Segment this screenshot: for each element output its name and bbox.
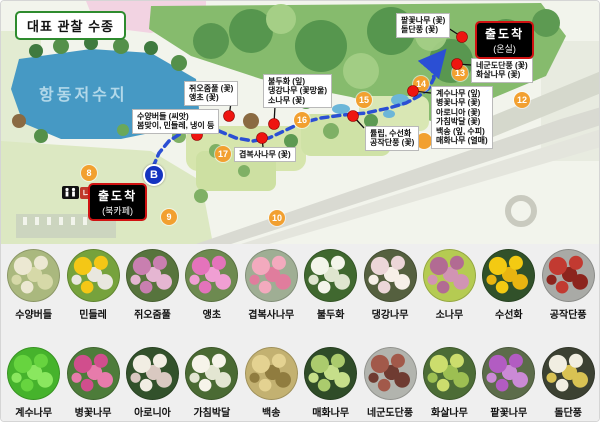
annotation-line: 화살나무 (꽃): [476, 70, 528, 79]
plant-item: 수양버들: [5, 249, 63, 321]
plant-name: 매화나무: [312, 404, 349, 419]
map-annotation-6: 네군도단풍 (꽃)화살나무 (꽃): [471, 58, 533, 83]
plant-item: 소나무: [420, 249, 478, 321]
plant-name: 앵초: [203, 306, 221, 321]
map-annotation-7: 팥꽃나무 (꽃)돌단풍 (꽃): [396, 13, 450, 38]
terminus-bookcafe-sub: (북카페): [98, 204, 137, 217]
plant-photo: [304, 347, 357, 400]
annotation-line: 앵초 (꽃): [189, 93, 233, 102]
plant-photo: [67, 249, 120, 302]
plant-item: 병꽃나무: [64, 347, 122, 419]
plant-name: 쥐오줌풀: [134, 306, 171, 321]
plant-photo: [126, 249, 179, 302]
annotation-line: 겹복사나무 (꽃): [239, 150, 291, 159]
plant-item: 네군도단풍: [361, 347, 419, 419]
terminus-greenhouse-title: 출도착: [485, 25, 524, 42]
plant-item: 앵초: [183, 249, 241, 321]
park-map: 대표 관찰 수종 항동저수지 출도착 (온실) 출도착 (북카페) B 나 89…: [1, 1, 600, 244]
plant-photo: [126, 347, 179, 400]
poi-dot: [257, 133, 268, 144]
infographic: 대표 관찰 수종 항동저수지 출도착 (온실) 출도착 (북카페) B 나 89…: [0, 0, 600, 422]
plant-item: 매화나무: [302, 347, 360, 419]
plant-name: 돌단풍: [554, 404, 582, 419]
plant-name: 아로니아: [134, 404, 171, 419]
plant-item: 돌단풍: [539, 347, 597, 419]
plant-name: 공작단풍: [550, 306, 587, 321]
annotation-line: 병꽃나무 (꽃): [436, 98, 488, 107]
annotation-line: 돌단풍 (꽃): [401, 25, 445, 34]
annotation-line: 공작단풍 (꽃): [370, 138, 414, 147]
plant-name: 가침박달: [193, 404, 230, 419]
annotation-line: 소나무 (꽃): [268, 96, 327, 105]
plant-item: 쥐오줌풀: [123, 249, 181, 321]
plant-name: 계수나무: [15, 404, 52, 419]
map-annotation-0: 쥐오줌풀 (꽃)앵초 (꽃): [184, 81, 238, 106]
bus-stop-marker: B: [143, 164, 165, 186]
plant-name: 겹복사나무: [248, 306, 294, 321]
plant-item: 백송: [242, 347, 300, 419]
plant-name: 수양버들: [15, 306, 52, 321]
plant-photo: [304, 249, 357, 302]
poi-dot: [408, 86, 419, 97]
plant-photo: [482, 249, 535, 302]
plant-item: 가침박달: [183, 347, 241, 419]
plant-name: 네군도단풍: [367, 404, 413, 419]
poi-dot: [348, 111, 359, 122]
annotation-line: 아로니아 (꽃): [436, 108, 488, 117]
map-annotation-3: 겹복사나무 (꽃): [234, 147, 296, 162]
plant-photo: [245, 347, 298, 400]
plant-photo: [7, 249, 60, 302]
poi-dot: [269, 119, 280, 130]
plant-photo: [423, 249, 476, 302]
plant-photo: [7, 347, 60, 400]
plant-name: 병꽃나무: [75, 404, 112, 419]
annotation-line: 가침박달 (꽃): [436, 117, 488, 126]
plant-photo: [245, 249, 298, 302]
map-annotation-4: 튤립, 수선화공작단풍 (꽃): [365, 126, 419, 151]
annotation-line: 봄맞이, 민들레, 냉이 등: [137, 121, 214, 130]
plant-name: 민들레: [79, 306, 107, 321]
plant-photo: [185, 347, 238, 400]
plant-name: 수선화: [495, 306, 523, 321]
poi-dot: [224, 111, 235, 122]
plant-photo: [423, 347, 476, 400]
plant-name: 소나무: [436, 306, 464, 321]
plant-photo: [67, 347, 120, 400]
plant-item: 수선화: [480, 249, 538, 321]
annotation-line: 매화나무 (열매): [436, 136, 488, 145]
plant-item: 공작단풍: [539, 249, 597, 321]
plant-item: 계수나무: [5, 347, 63, 419]
plant-name: 백송: [262, 404, 280, 419]
plant-name: 댕강나무: [372, 306, 409, 321]
plant-item: 화살나무: [420, 347, 478, 419]
plant-name: 불두화: [317, 306, 345, 321]
species-photo-grid: 수양버들민들레쥐오줌풀앵초겹복사나무불두화댕강나무소나무수선화공작단풍 계수나무…: [1, 244, 600, 422]
annotation-line: 댕강나무 (꽃망울): [268, 86, 327, 95]
plant-item: 팥꽃나무: [480, 347, 538, 419]
photo-row-2: 계수나무병꽃나무아로니아가침박달백송매화나무네군도단풍화살나무팥꽃나무돌단풍: [1, 347, 600, 419]
annotation-line: 백송 (잎, 수피): [436, 127, 488, 136]
plant-item: 불두화: [302, 249, 360, 321]
plant-item: 민들레: [64, 249, 122, 321]
plant-photo: [364, 249, 417, 302]
plant-photo: [482, 347, 535, 400]
terminus-bookcafe-title: 출도착: [98, 187, 137, 204]
plant-item: 겹복사나무: [242, 249, 300, 321]
plant-photo: [542, 347, 595, 400]
plant-photo: [185, 249, 238, 302]
plant-photo: [542, 249, 595, 302]
poi-dot: [457, 32, 468, 43]
map-annotation-2: 수양버들 (씨앗)봄맞이, 민들레, 냉이 등: [132, 109, 219, 134]
terminus-bookcafe: 출도착 (북카페): [88, 183, 147, 221]
terminus-greenhouse-sub: (온실): [485, 42, 524, 55]
plant-photo: [364, 347, 417, 400]
plant-name: 팥꽃나무: [490, 404, 527, 419]
poi-dot: [452, 59, 463, 70]
plant-item: 댕강나무: [361, 249, 419, 321]
plant-item: 아로니아: [123, 347, 181, 419]
photo-row-1: 수양버들민들레쥐오줌풀앵초겹복사나무불두화댕강나무소나무수선화공작단풍: [1, 249, 600, 321]
terminus-greenhouse: 출도착 (온실): [475, 21, 534, 59]
map-annotation-1: 불두화 (잎)댕강나무 (꽃망울)소나무 (꽃): [263, 74, 332, 108]
plant-name: 화살나무: [431, 404, 468, 419]
map-annotation-5: 계수나무 (잎)병꽃나무 (꽃)아로니아 (꽃)가침박달 (꽃)백송 (잎, 수…: [431, 86, 493, 149]
